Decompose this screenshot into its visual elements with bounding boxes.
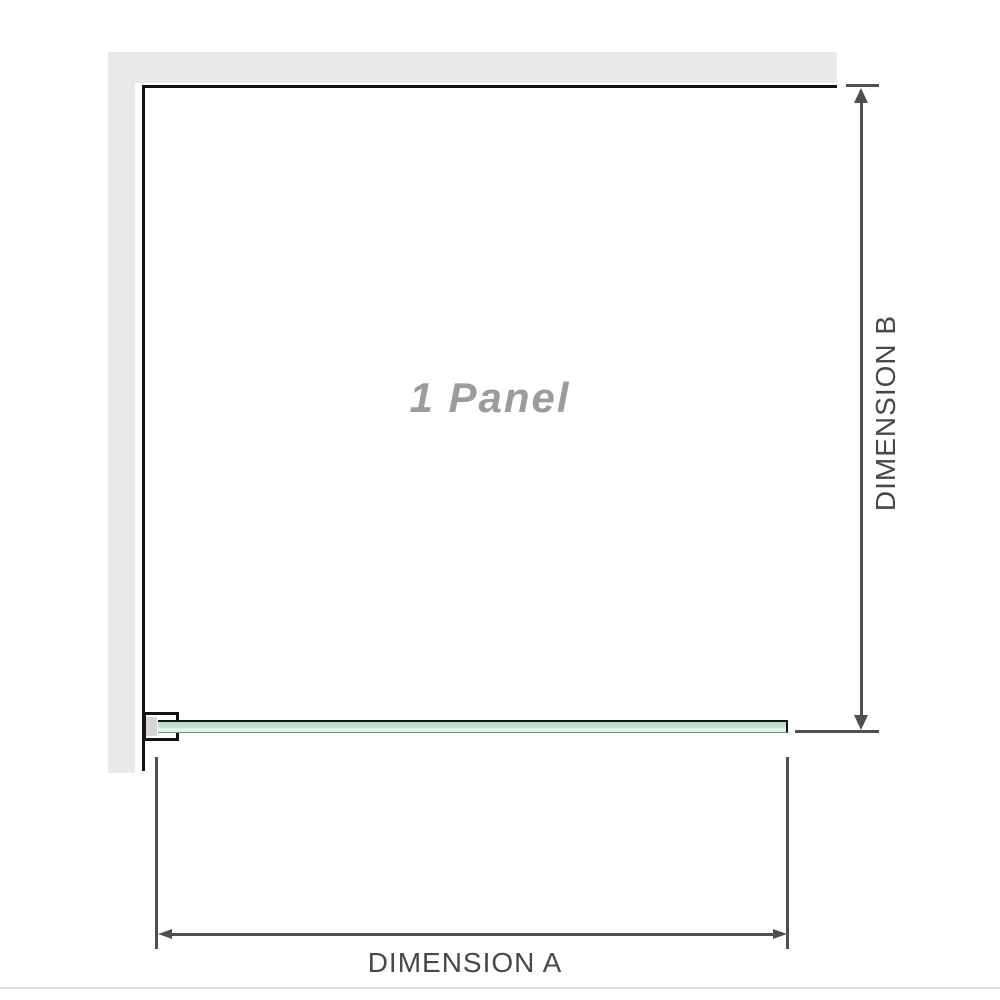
arrow-down-icon <box>854 715 868 730</box>
arrow-right-icon <box>773 929 787 939</box>
wall-top <box>108 52 837 83</box>
dimension-a-line <box>166 933 780 936</box>
wall-left <box>108 52 135 773</box>
dimension-a-right-extension-line <box>786 757 789 949</box>
glass-panel <box>158 720 788 733</box>
wall-bracket-inner-pad <box>146 717 157 736</box>
panel-area-left-line <box>142 85 145 771</box>
panel-count-label: 1 Panel <box>143 374 837 422</box>
shower-panel-dimension-diagram: 1 Panel DIMENSION B DIMENSION A <box>0 0 1000 1000</box>
arrow-up-icon <box>854 88 868 103</box>
dimension-a-label: DIMENSION A <box>330 946 600 980</box>
arrow-left-icon <box>158 929 172 939</box>
bottom-divider-line <box>0 987 1000 989</box>
dimension-b-line <box>860 94 863 722</box>
dimension-b-label: DIMENSION B <box>869 303 903 523</box>
dimension-b-top-tick <box>846 84 879 87</box>
panel-area-top-line <box>143 85 837 88</box>
dimension-b-bottom-tick <box>795 730 879 733</box>
dimension-a-left-extension-line <box>155 757 158 949</box>
